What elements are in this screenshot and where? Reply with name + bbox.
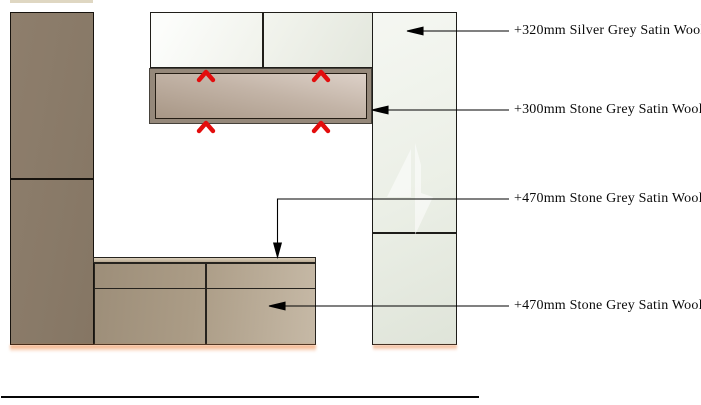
annotation-label-stone-grey-470-bottom: +470mm Stone Grey Satin Wool <box>514 298 701 314</box>
red-chevron-icon <box>196 68 216 83</box>
red-chevron-icon <box>311 119 331 134</box>
ceiling-strip <box>10 0 93 3</box>
stone-grey-panel <box>155 73 367 119</box>
left-tall-cabinet <box>10 12 94 345</box>
base-cabinet-underglow <box>10 345 316 352</box>
red-chevron-icon <box>199 72 213 80</box>
right-tall-cabinet <box>372 12 457 345</box>
upper-wall-cabinets <box>150 12 373 68</box>
annotation-label-stone-grey-300: +300mm Stone Grey Satin Wool <box>514 102 701 118</box>
red-chevron-icon <box>196 119 216 134</box>
base-cabinet-drawer-divider <box>95 288 315 289</box>
glare-shape <box>415 143 433 235</box>
glare-watermark <box>381 135 439 247</box>
glare-shape <box>387 149 411 197</box>
arrowhead-down-icon <box>274 243 282 257</box>
annotation-label-stone-grey-470-top: +470mm Stone Grey Satin Wool <box>514 191 701 207</box>
stone-grey-panel-frame <box>149 68 372 124</box>
base-cabinets <box>94 263 316 345</box>
upper-cabinet-door-divider <box>262 13 264 67</box>
right-cabinet-underglow <box>373 345 457 351</box>
base-cabinet-divider-vertical <box>205 264 207 344</box>
annotation-label-silver-grey-320: +320mm Silver Grey Satin Wool <box>514 23 701 39</box>
red-chevron-icon <box>199 123 213 131</box>
left-cabinet-door-divider <box>11 178 93 180</box>
red-chevron-icon <box>311 68 331 83</box>
red-chevron-icon <box>314 72 328 80</box>
elevation-drawing-canvas: +320mm Silver Grey Satin Wool +300mm Sto… <box>0 0 701 405</box>
red-chevron-icon <box>314 123 328 131</box>
bottom-rule-line <box>1 396 479 398</box>
